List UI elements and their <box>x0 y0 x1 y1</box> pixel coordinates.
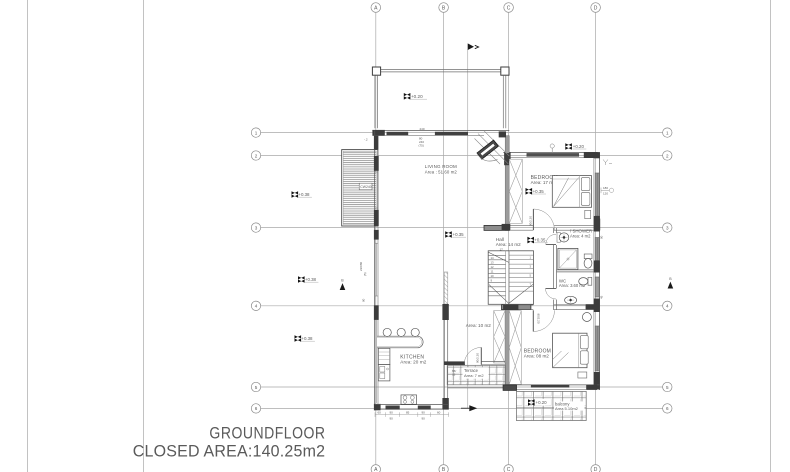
svg-text:85: 85 <box>406 411 410 415</box>
svg-text:+0.35: +0.35 <box>533 189 545 194</box>
svg-text:D: D <box>594 467 598 472</box>
svg-text:Area: 10 m2: Area: 10 m2 <box>466 323 491 328</box>
svg-text:3: 3 <box>666 225 669 230</box>
svg-text:15: 15 <box>452 372 456 376</box>
svg-text:D: D <box>594 5 598 11</box>
svg-text:GROUNDFLOOR: GROUNDFLOOR <box>209 424 325 442</box>
svg-text:5: 5 <box>666 385 669 390</box>
svg-text:CW240: CW240 <box>360 185 371 189</box>
svg-text:C: C <box>507 5 511 11</box>
svg-text:1: 1 <box>666 130 669 135</box>
svg-text:240: 240 <box>420 127 425 131</box>
svg-text:17: 17 <box>500 248 504 252</box>
svg-text:90: 90 <box>422 417 426 421</box>
svg-text:6: 6 <box>666 406 669 411</box>
svg-text:180: 180 <box>603 186 608 190</box>
svg-text:+0.38: +0.38 <box>301 336 313 341</box>
svg-text:Area: 7 m2: Area: 7 m2 <box>464 373 484 378</box>
svg-text:45: 45 <box>600 295 604 299</box>
svg-text:+0.20: +0.20 <box>536 400 548 405</box>
svg-text:60: 60 <box>437 411 441 415</box>
svg-text:90: 90 <box>362 298 366 302</box>
svg-text:(75): (75) <box>419 144 424 148</box>
svg-text:1: 1 <box>255 130 258 135</box>
svg-text:Area: 4 m2: Area: 4 m2 <box>570 233 591 238</box>
svg-text:3: 3 <box>255 225 258 230</box>
svg-text:90/2.20: 90/2.20 <box>476 353 480 363</box>
svg-text:+0.20: +0.20 <box>411 94 423 99</box>
svg-text:-.2: -.2 <box>364 138 368 142</box>
svg-text:+0.35: +0.35 <box>453 232 465 237</box>
svg-text:C: C <box>507 467 511 472</box>
svg-text:220/80: 220/80 <box>359 261 363 271</box>
svg-text:120: 120 <box>603 192 608 196</box>
svg-text:14: 14 <box>491 256 495 260</box>
svg-text:90/2.20: 90/2.20 <box>537 314 541 324</box>
svg-text:+0.35: +0.35 <box>534 238 546 243</box>
svg-text:(5): (5) <box>363 272 367 276</box>
svg-text:Area: 20 m2: Area: 20 m2 <box>400 360 426 365</box>
svg-text:2: 2 <box>255 153 258 158</box>
svg-text:11: 11 <box>491 269 494 273</box>
svg-text:+0.38: +0.38 <box>305 277 317 282</box>
svg-text:Area: 14 m2: Area: 14 m2 <box>496 242 521 247</box>
svg-text:90: 90 <box>390 417 394 421</box>
svg-text:Area 5.10m2: Area 5.10m2 <box>555 406 579 411</box>
svg-text:2: 2 <box>666 153 669 158</box>
svg-text:6: 6 <box>255 406 258 411</box>
svg-text:4: 4 <box>666 304 669 309</box>
svg-text:5: 5 <box>255 385 258 390</box>
svg-text:LIVING ROOM: LIVING ROOM <box>425 164 457 169</box>
svg-text:60: 60 <box>378 411 382 415</box>
svg-text:Area: 08 m2: Area: 08 m2 <box>524 354 549 359</box>
svg-text:10: 10 <box>491 274 495 278</box>
svg-text:CLOSED AREA:140.25m2: CLOSED AREA:140.25m2 <box>133 442 325 460</box>
svg-text:4: 4 <box>255 304 258 309</box>
svg-text:90: 90 <box>422 411 426 415</box>
svg-text:+0.20: +0.20 <box>573 144 585 149</box>
svg-text:90: 90 <box>390 411 394 415</box>
svg-text:Area : 51.60 m2: Area : 51.60 m2 <box>425 170 458 175</box>
svg-text:90/2.20: 90/2.20 <box>529 216 533 226</box>
svg-text:12: 12 <box>491 265 495 269</box>
svg-text:90: 90 <box>600 235 604 239</box>
svg-text:+0.38: +0.38 <box>298 192 310 197</box>
svg-text:13: 13 <box>491 260 495 264</box>
